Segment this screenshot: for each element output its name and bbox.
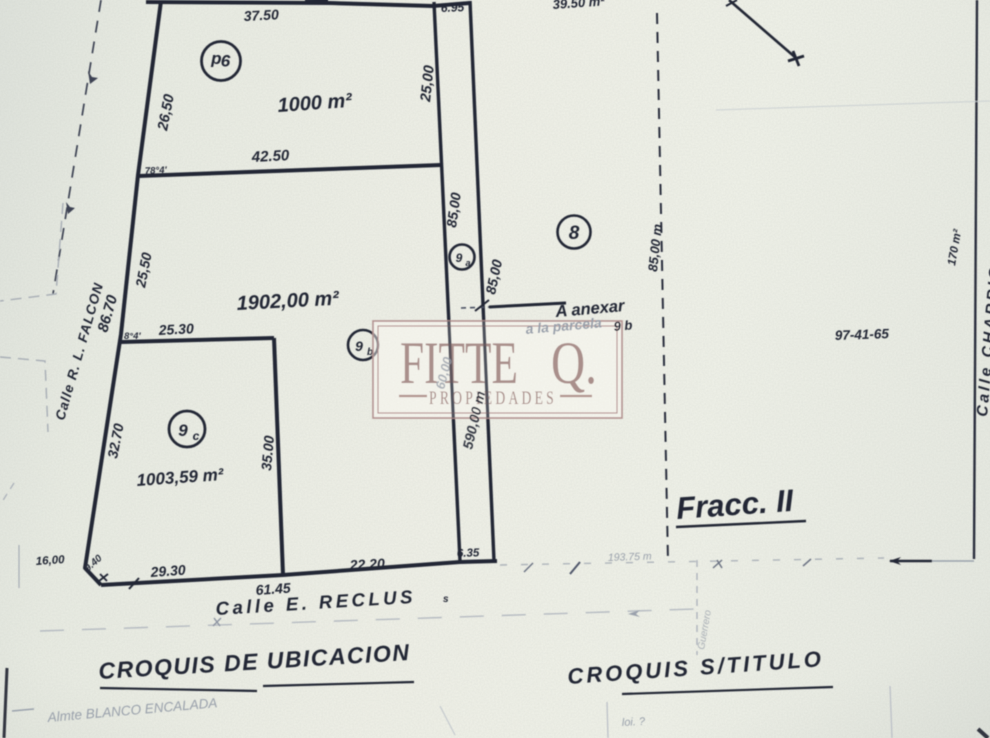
svg-text:s: s [443,594,449,605]
svg-text:b: b [367,347,373,358]
svg-text:8: 8 [569,223,580,244]
svg-text:97-41-65: 97-41-65 [835,326,890,343]
svg-text:193.75 m: 193.75 m [608,550,652,564]
svg-text:16,00: 16,00 [35,554,65,568]
svg-text:6.35: 6.35 [457,547,480,560]
svg-text:9d: 9d [210,51,230,70]
svg-text:9 b: 9 b [613,317,633,334]
svg-text:78°4': 78°4' [145,165,168,177]
svg-text:a: a [465,258,470,268]
svg-text:9: 9 [178,421,188,440]
svg-text:9: 9 [355,338,363,354]
svg-text:loi. ?: loi. ? [622,716,647,729]
svg-text:8°4': 8°4' [124,331,141,342]
svg-text:42.50: 42.50 [250,147,290,166]
svg-text:25.30: 25.30 [157,320,194,338]
svg-text:37.50: 37.50 [243,6,279,24]
svg-text:35.00: 35.00 [258,435,277,472]
svg-text:6.95: 6.95 [441,0,465,15]
svg-text:29.30: 29.30 [149,562,186,580]
svg-text:c: c [193,429,200,443]
svg-text:Q.: Q. [551,330,597,396]
svg-text:FITTE: FITTE [400,330,518,396]
svg-text:9: 9 [456,251,463,265]
svg-text:PROPIEDADES: PROPIEDADES [429,388,557,409]
svg-text:22.20: 22.20 [348,555,385,573]
